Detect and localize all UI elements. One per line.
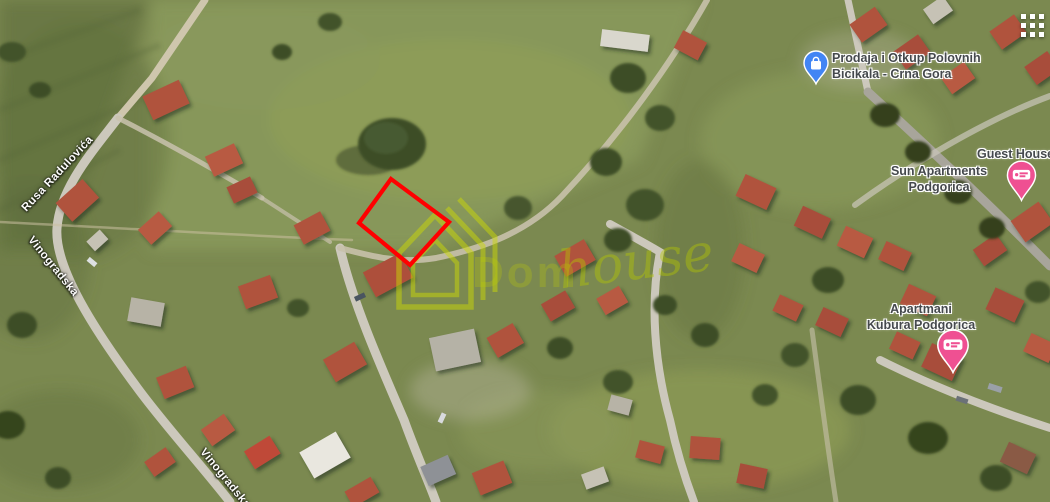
lodging-price-pin-icon[interactable] bbox=[936, 329, 970, 379]
place-label-sun-apartments[interactable]: Sun Apartments Podgorica bbox=[872, 164, 1006, 195]
shopping-bag-pin-icon[interactable] bbox=[803, 50, 829, 91]
lodging-price-pin-icon[interactable] bbox=[1006, 160, 1037, 207]
satellite-map-canvas[interactable]: Dom house Rusa Radulovića Vinogradska Vi… bbox=[0, 0, 1050, 502]
place-label-bike-shop[interactable]: Prodaja i Otkup Polovnih Bicikala - Crna… bbox=[832, 51, 981, 82]
apps-grid-icon[interactable] bbox=[1021, 14, 1044, 37]
